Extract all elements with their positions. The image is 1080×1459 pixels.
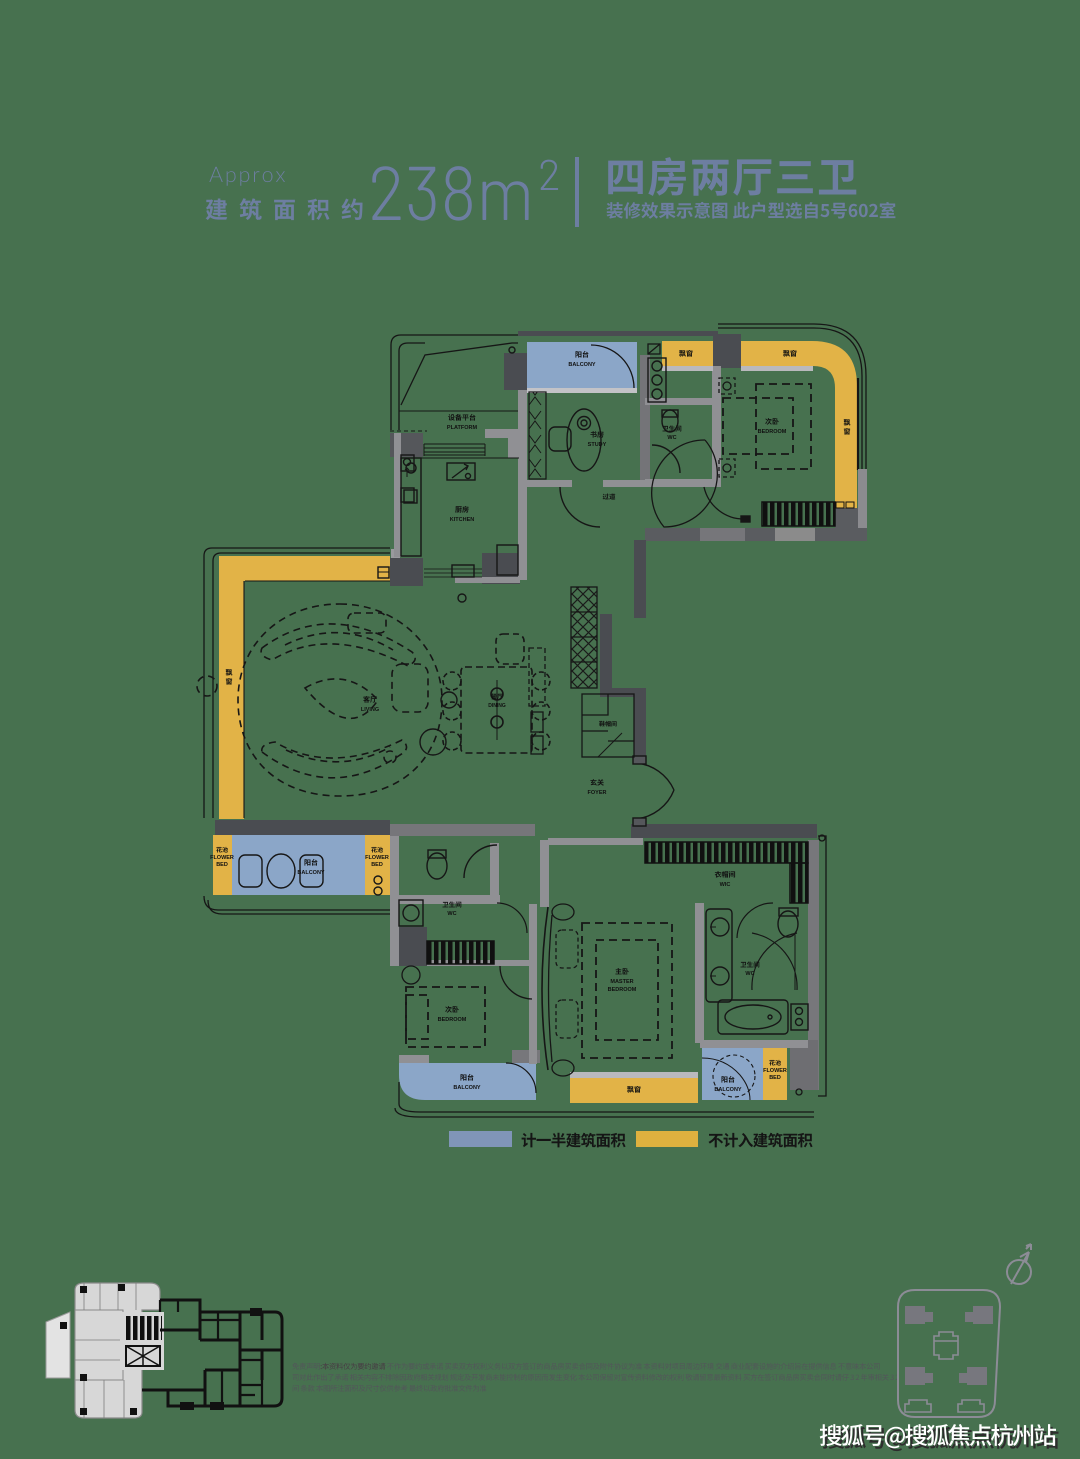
svg-text:LIVING: LIVING bbox=[361, 707, 379, 713]
svg-text:DINING: DINING bbox=[488, 703, 506, 709]
svg-text:WC: WC bbox=[447, 911, 456, 917]
svg-text:STUDY: STUDY bbox=[588, 442, 607, 448]
svg-text:WIC: WIC bbox=[720, 882, 731, 888]
svg-text:BALCONY: BALCONY bbox=[453, 1085, 481, 1091]
svg-text:BEDROOM: BEDROOM bbox=[608, 987, 637, 993]
svg-text:BALCONY: BALCONY bbox=[714, 1087, 742, 1093]
svg-text:BEDROOM: BEDROOM bbox=[438, 1017, 467, 1023]
svg-text:WC: WC bbox=[667, 435, 676, 441]
svg-text:BEDROOM: BEDROOM bbox=[758, 429, 787, 435]
svg-text:BED: BED bbox=[769, 1075, 781, 1081]
svg-text:PLATFORM: PLATFORM bbox=[447, 425, 478, 431]
svg-text:BALCONY: BALCONY bbox=[568, 362, 596, 368]
svg-text:KITCHEN: KITCHEN bbox=[450, 517, 474, 523]
svg-text:FOYER: FOYER bbox=[588, 790, 607, 796]
svg-text:MASTER: MASTER bbox=[610, 979, 633, 985]
svg-text:WC: WC bbox=[745, 971, 754, 977]
svg-text:BED: BED bbox=[216, 862, 228, 868]
svg-text:BED: BED bbox=[371, 862, 383, 868]
svg-text:BALCONY: BALCONY bbox=[297, 870, 325, 876]
svg-text:FLOWER: FLOWER bbox=[763, 1068, 787, 1074]
svg-text:FLOWER: FLOWER bbox=[210, 855, 234, 861]
svg-text:FLOWER: FLOWER bbox=[365, 855, 389, 861]
